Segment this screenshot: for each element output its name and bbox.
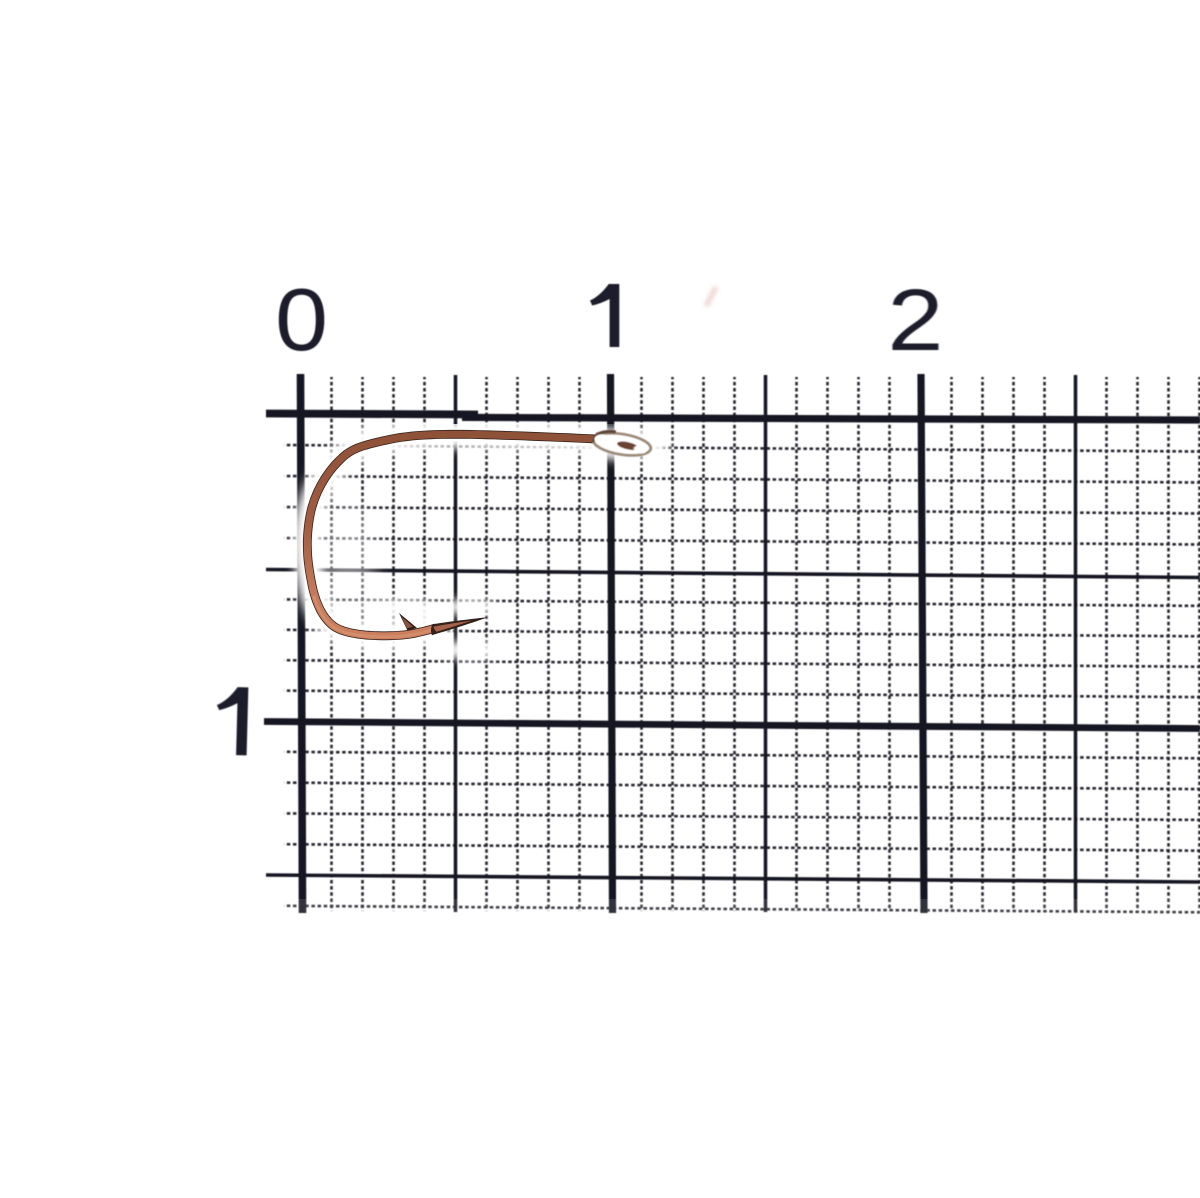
svg-text:2: 2 <box>887 272 943 369</box>
svg-text:0: 0 <box>275 271 328 369</box>
